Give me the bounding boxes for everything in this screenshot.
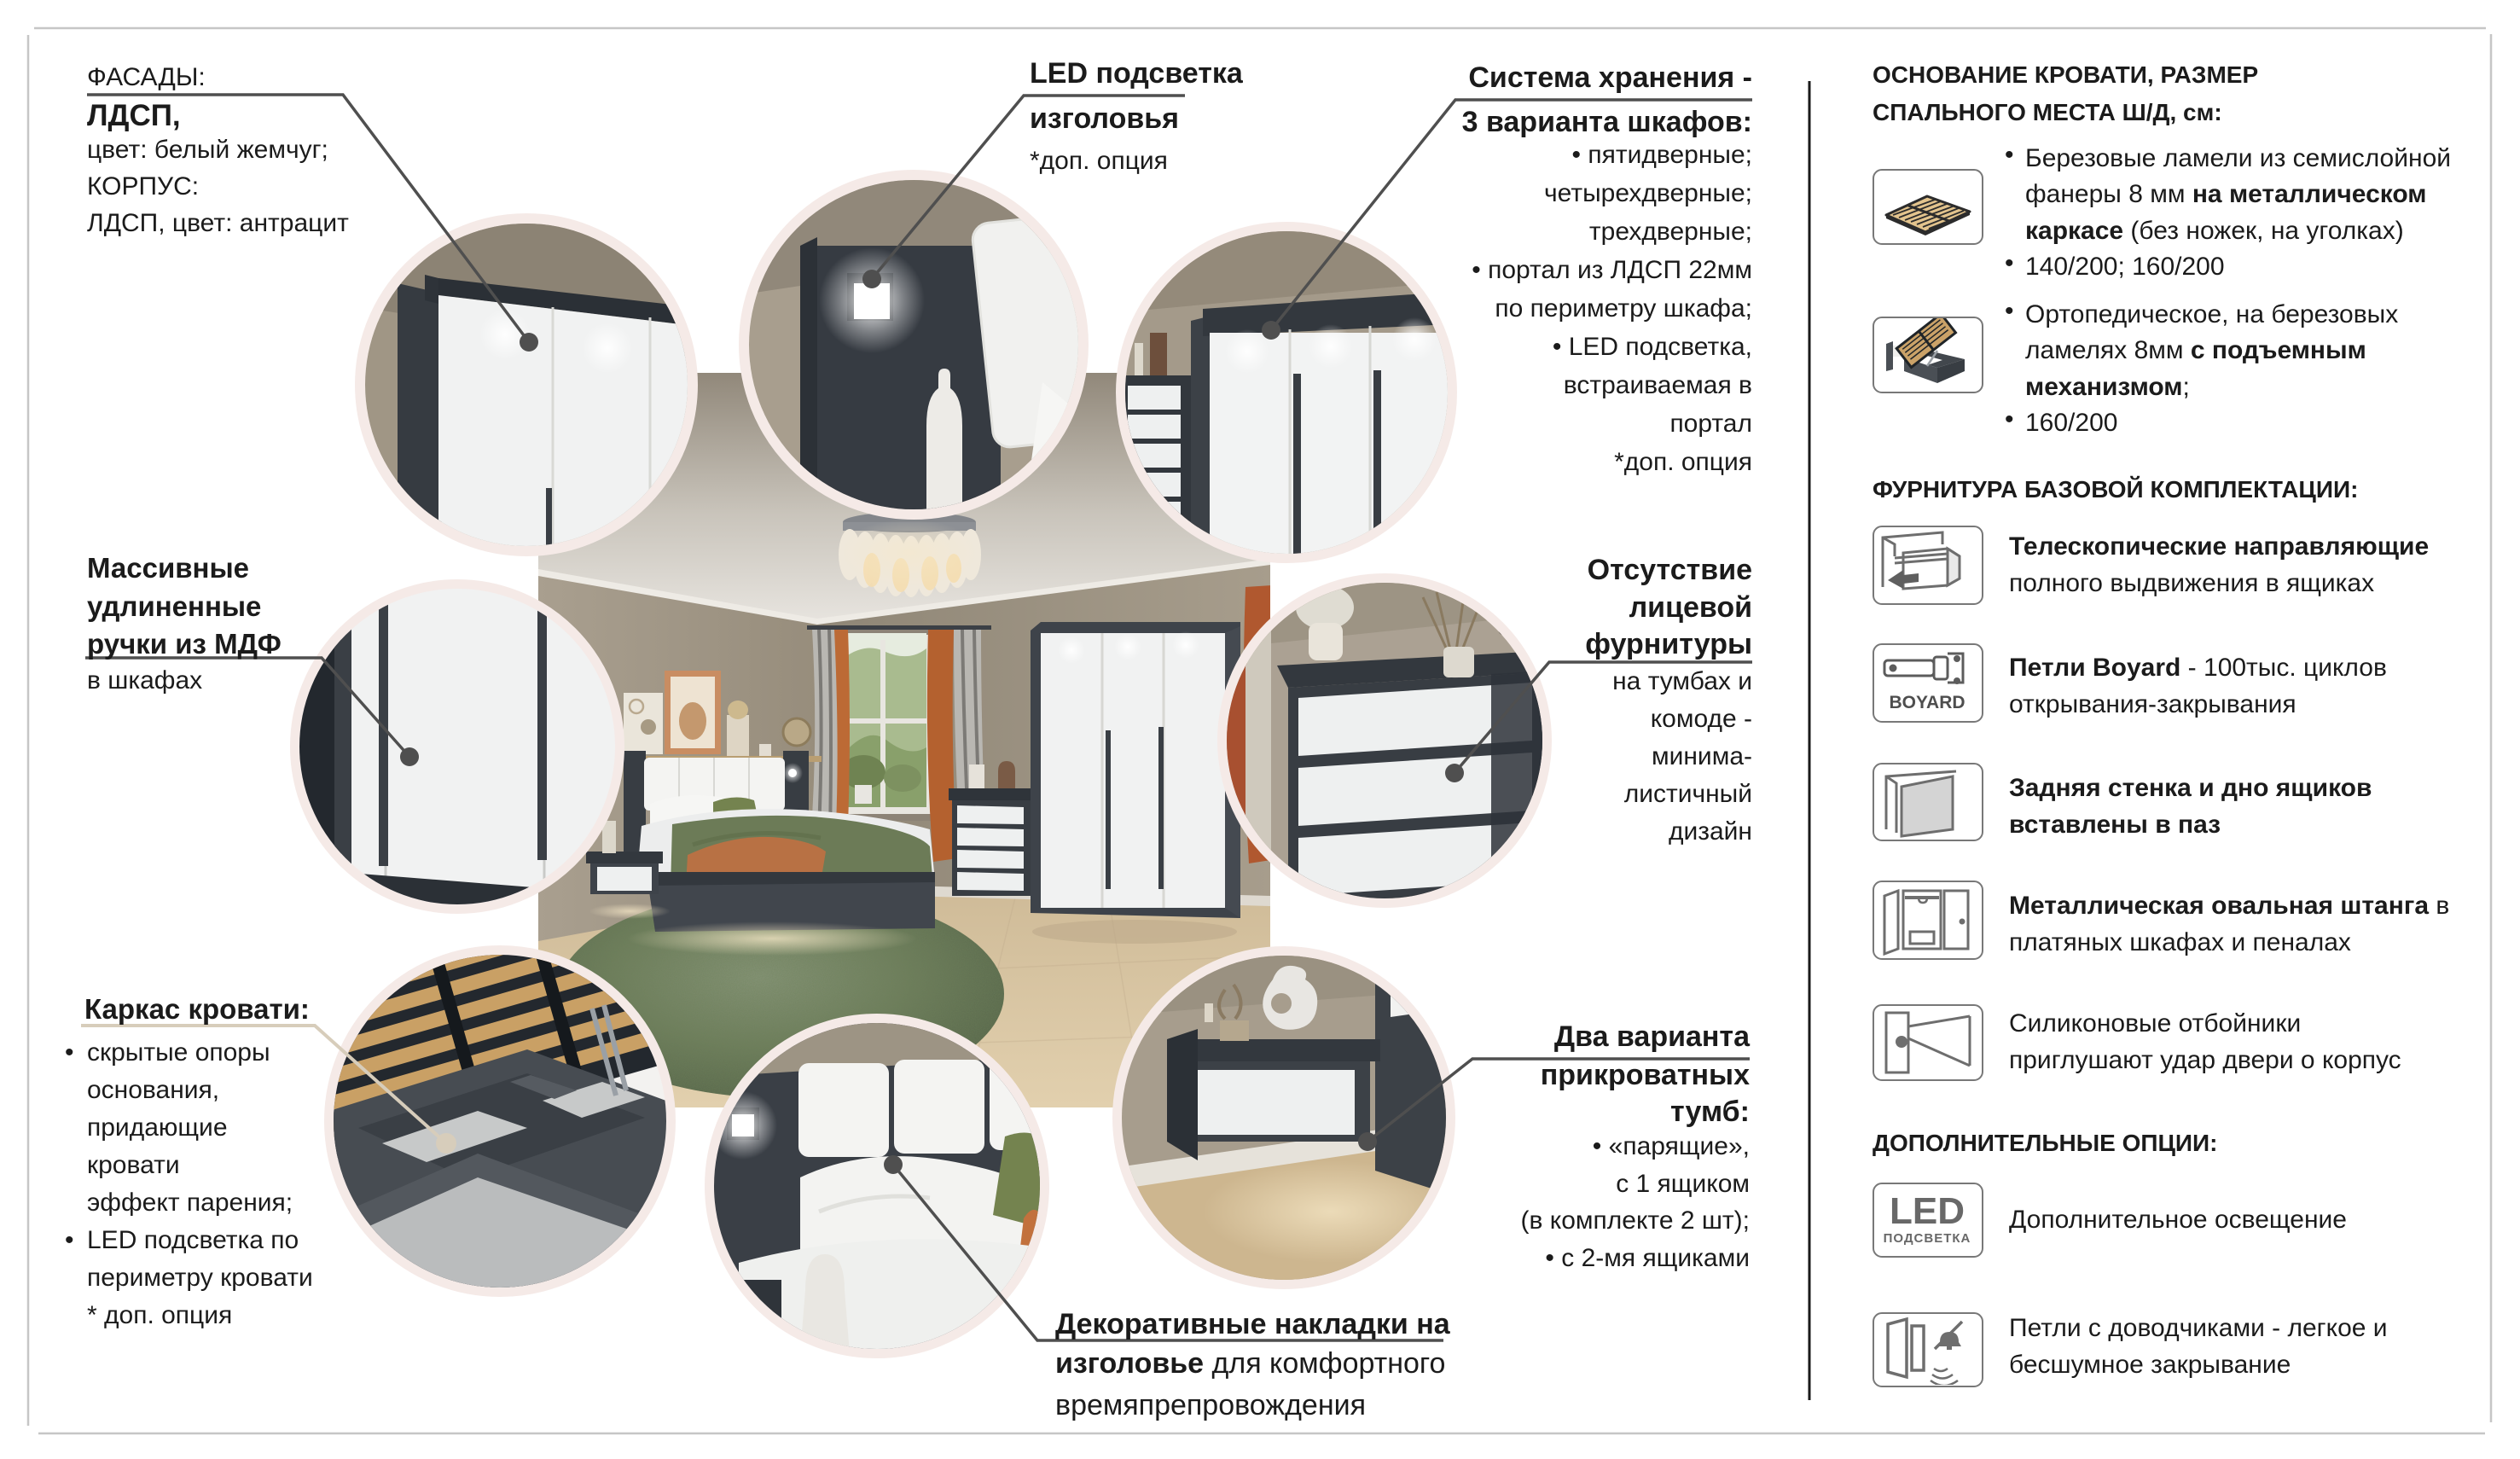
svg-text:ПОДСВЕТКА: ПОДСВЕТКА [1884, 1231, 1971, 1246]
svg-text:BOYARD: BOYARD [1889, 693, 1965, 712]
svg-text:LED: LED [1890, 1190, 1965, 1232]
